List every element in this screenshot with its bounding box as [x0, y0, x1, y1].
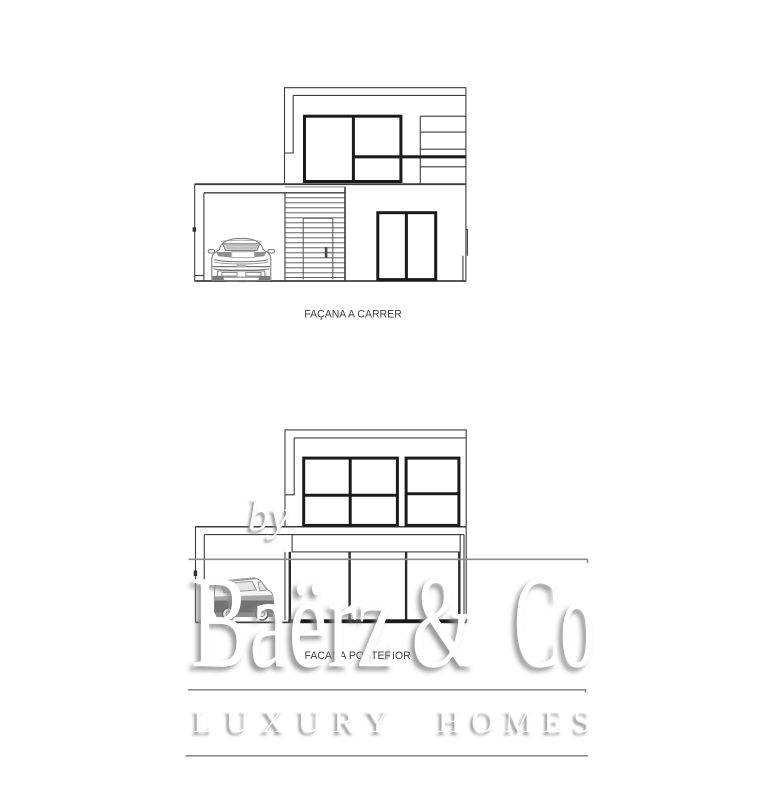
- svg-text:Baërz: Baërz: [191, 550, 396, 696]
- svg-text:FAÇANA A CARRER: FAÇANA A CARRER: [304, 309, 401, 321]
- svg-text:LUXURY: LUXURY: [193, 703, 402, 739]
- svg-text:&: &: [412, 548, 475, 695]
- svg-text:by: by: [248, 491, 290, 540]
- svg-text:HOMES: HOMES: [438, 703, 602, 739]
- svg-text:Co: Co: [514, 548, 595, 695]
